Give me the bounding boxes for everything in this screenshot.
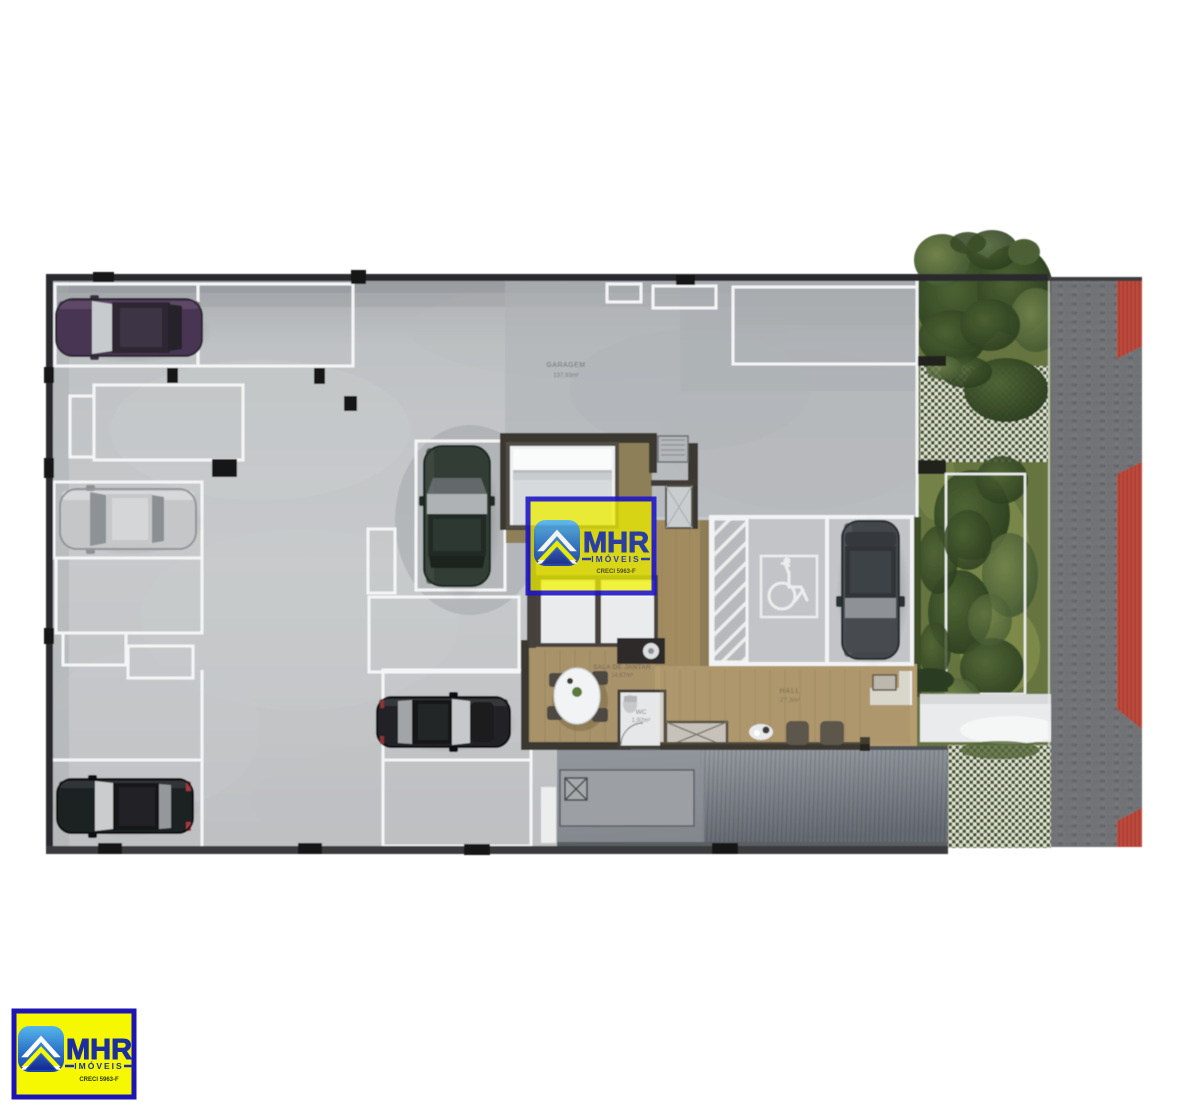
svg-text:IMÓVEIS: IMÓVEIS	[74, 1060, 123, 1071]
svg-text:SALA DE JANTAR: SALA DE JANTAR	[593, 664, 651, 671]
svg-text:IMÓVEIS: IMÓVEIS	[591, 553, 640, 564]
svg-text:CRECI 5963-F: CRECI 5963-F	[596, 569, 636, 575]
svg-text:27,3m²: 27,3m²	[780, 697, 801, 704]
svg-text:WC: WC	[636, 709, 647, 716]
svg-text:GARAGEM: GARAGEM	[546, 362, 585, 369]
svg-text:137,93m²: 137,93m²	[553, 373, 578, 379]
svg-text:14,67m²: 14,67m²	[611, 673, 633, 679]
svg-text:CRECI 5963-F: CRECI 5963-F	[79, 1077, 119, 1083]
svg-text:1,92m²: 1,92m²	[632, 718, 651, 724]
svg-text:HALL: HALL	[780, 688, 801, 695]
